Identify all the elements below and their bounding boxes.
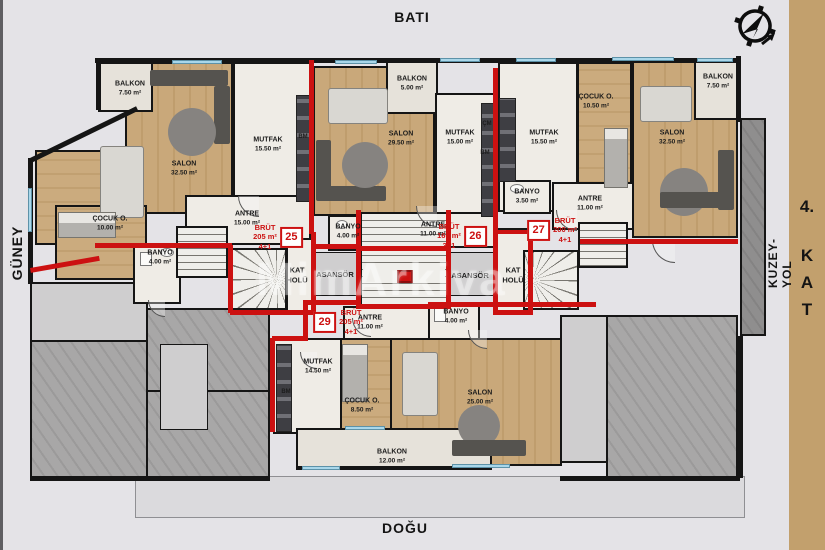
kitchen-counter	[276, 344, 292, 432]
label-balkon-27: BALKON7.50 m²	[703, 74, 733, 91]
left-edge-strip	[0, 0, 3, 550]
label-mutfak-29: MUTFAK14.50 m²	[303, 359, 332, 376]
unit-badge-27: 27 BRÜT200 m²4+1	[527, 216, 577, 244]
stairs-left-winder	[229, 248, 287, 310]
lower-terrace-outline	[135, 476, 745, 518]
wall	[30, 476, 270, 481]
unit-badge-26: BRÜT160 m²3+1 26	[437, 222, 487, 250]
sofa	[660, 192, 732, 208]
direction-east: DOĞU	[382, 520, 428, 536]
window-glazing	[302, 466, 340, 470]
window-glazing	[345, 426, 385, 430]
appliance-tag-bm: BM	[281, 389, 290, 395]
wall	[736, 56, 741, 122]
direction-south: GÜNEY	[9, 226, 25, 281]
label-cocuk-29: ÇOCUK O.8.50 m²	[345, 398, 380, 415]
inactive-area	[560, 315, 608, 463]
floor-number-badge: 4. K A T	[789, 198, 825, 318]
red-wall	[356, 246, 450, 251]
red-wall	[493, 310, 533, 315]
unit-number-27: 27	[527, 220, 550, 241]
label-kat-holu-left: KATHOLÜ	[286, 265, 307, 285]
label-mutfak-27: MUTFAK15.50 m²	[529, 130, 558, 147]
north-arrow-compass-icon	[720, 0, 790, 56]
rug	[342, 142, 388, 188]
red-wall	[228, 245, 233, 313]
label-balkon-26: BALKON5.00 m²	[397, 76, 427, 93]
inactive-area	[30, 340, 148, 478]
unit-number-25: 25	[280, 227, 303, 248]
window-glazing	[516, 58, 556, 62]
label-salon-26: SALON29.50 m²	[388, 131, 414, 148]
window-glazing	[28, 188, 32, 232]
red-wall	[270, 338, 275, 432]
unit-badge-29: 29 BRÜT205 m²4+1	[313, 308, 363, 336]
direction-north-road: KUZEY-YOL	[766, 238, 794, 288]
red-wall	[303, 300, 308, 340]
label-asansor-left: ASANSÖR	[316, 270, 354, 280]
dining-table	[402, 352, 438, 416]
dining-table	[640, 86, 692, 122]
inactive-area	[606, 315, 738, 478]
label-banyo-27: BANYO3.50 m²	[514, 189, 539, 206]
bed	[604, 128, 628, 188]
label-banyo-29: BANYO4.00 m²	[443, 309, 468, 326]
appliance-tag-bm: BM	[480, 150, 489, 156]
appliance-tag-cm: ÇM	[482, 121, 491, 127]
red-wall	[493, 232, 498, 312]
sofa	[316, 140, 331, 190]
wall	[738, 336, 743, 478]
label-salon-29: SALON25.00 m²	[467, 390, 493, 407]
red-wall	[493, 68, 498, 232]
floor-number: 4.	[800, 198, 814, 215]
label-salon-25: SALON32.50 m²	[171, 161, 197, 178]
window-glazing	[452, 464, 510, 468]
label-banyo-26: BANYO4.00 m²	[335, 224, 360, 241]
unit-number-29: 29	[313, 312, 336, 333]
red-wall	[580, 239, 738, 244]
wall	[560, 476, 740, 481]
sofa	[452, 440, 526, 456]
elevator-shaft-marker	[397, 270, 413, 283]
label-salon-27: SALON32.50 m²	[659, 130, 685, 147]
label-asansor-right: ASANSÖR	[451, 271, 489, 281]
red-wall	[306, 300, 360, 305]
red-wall	[428, 302, 596, 307]
direction-west: BATI	[394, 9, 430, 25]
unit-number-26: 26	[464, 226, 487, 247]
window-glazing	[172, 60, 222, 64]
window-glazing	[335, 60, 377, 64]
window-glazing	[440, 58, 480, 62]
label-banyo-25: BANYO4.00 m²	[147, 250, 172, 267]
red-wall	[95, 243, 232, 248]
unit-badge-25: BRÜT205 m²4+1 25	[253, 223, 303, 251]
label-cocuk-25: ÇOCUK O.10.00 m²	[93, 216, 128, 233]
floor-plan-page: BALKON7.50 m² SALON32.50 m² MUTFAK15.50 …	[0, 0, 825, 550]
dining-table	[328, 88, 388, 124]
red-wall	[309, 60, 314, 234]
kitchen-counter	[499, 98, 516, 182]
label-mutfak-26: MUTFAK15.00 m²	[445, 130, 474, 147]
window-glazing	[697, 58, 733, 62]
sofa	[150, 70, 228, 86]
inactive-area	[30, 282, 148, 342]
bed	[342, 344, 368, 402]
label-kat-holu-right: KATHOLÜ	[502, 265, 523, 285]
wall	[96, 58, 101, 110]
dining-table	[100, 146, 144, 218]
window-glazing	[612, 57, 674, 61]
red-wall	[313, 244, 358, 249]
label-cocuk-27: ÇOCUK O.10.50 m²	[579, 94, 614, 111]
label-mutfak-25: MUTFAK15.50 m²	[253, 137, 282, 154]
sofa	[214, 86, 230, 144]
stairs-left-flight	[176, 226, 228, 278]
label-balkon-29: BALKON12.00 m²	[377, 449, 407, 466]
label-antre-27: ANTRE11.00 m²	[577, 196, 603, 213]
appliance-tag-bm: BM	[298, 134, 307, 140]
inactive-area	[160, 344, 208, 430]
stairs-right-flight	[578, 222, 628, 268]
inactive-area-right-strip	[740, 118, 766, 336]
label-balkon-25: BALKON7.50 m²	[115, 81, 145, 98]
red-wall	[272, 336, 308, 341]
rug	[168, 108, 216, 156]
